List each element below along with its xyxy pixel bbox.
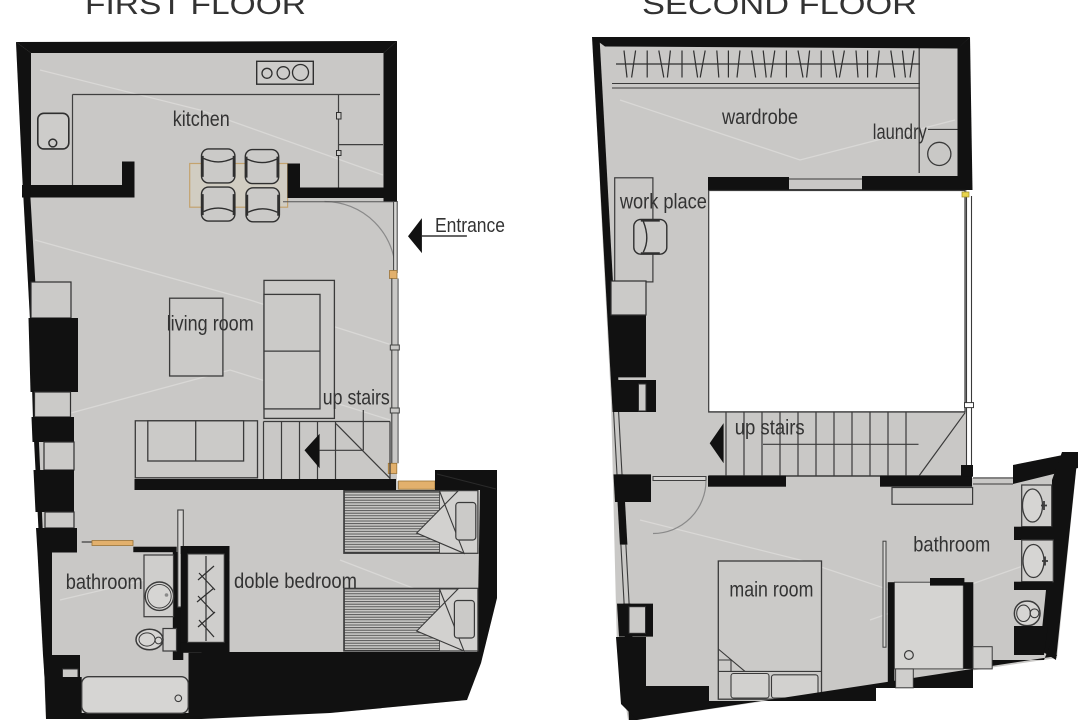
svg-text:Entrance: Entrance	[435, 215, 505, 237]
svg-text:up stairs: up stairs	[323, 387, 390, 410]
svg-text:bathroom: bathroom	[66, 571, 143, 594]
svg-text:main room: main room	[729, 579, 813, 602]
svg-text:kitchen: kitchen	[173, 108, 230, 131]
svg-text:doble bedroom: doble bedroom	[234, 570, 357, 593]
svg-text:wardrobe: wardrobe	[721, 106, 798, 129]
svg-text:living room: living room	[167, 313, 254, 336]
svg-text:work place: work place	[619, 191, 707, 214]
svg-text:up stairs: up stairs	[735, 416, 805, 439]
svg-text:bathroom: bathroom	[913, 534, 990, 557]
svg-text:laundry: laundry	[873, 121, 927, 144]
svg-text:SECOND FLOOR: SECOND FLOOR	[642, 0, 917, 21]
svg-text:FIRST FLOOR: FIRST FLOOR	[85, 0, 306, 21]
